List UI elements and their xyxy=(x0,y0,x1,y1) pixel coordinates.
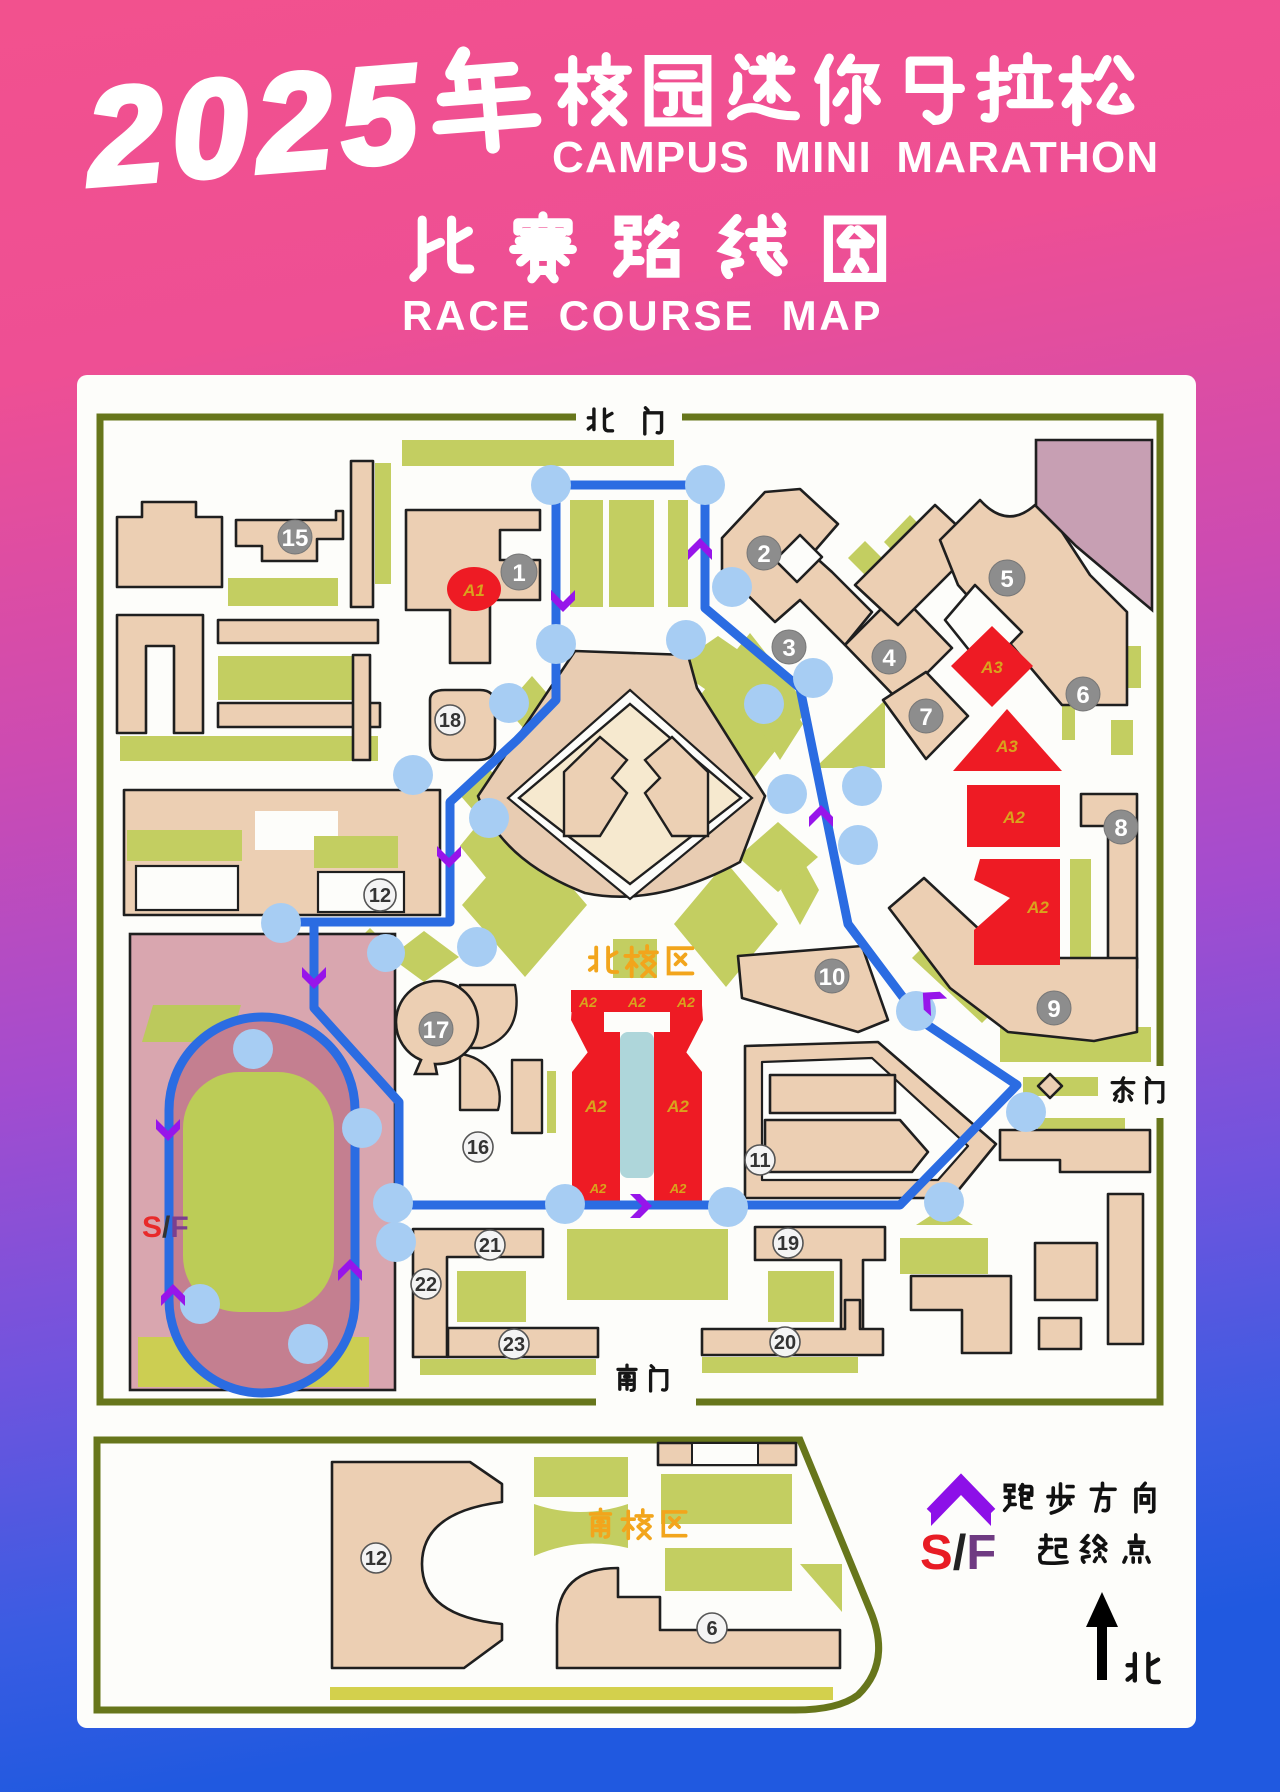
svg-text:A2: A2 xyxy=(669,1181,687,1196)
svg-text:A2: A2 xyxy=(1026,898,1049,917)
svg-text:3: 3 xyxy=(782,635,795,662)
svg-text:21: 21 xyxy=(479,1235,501,1257)
svg-text:15: 15 xyxy=(282,525,309,552)
svg-text:5: 5 xyxy=(1000,566,1013,593)
svg-text:A3: A3 xyxy=(995,737,1018,756)
svg-text:23: 23 xyxy=(503,1334,525,1356)
svg-text:12: 12 xyxy=(365,1548,387,1570)
svg-text:CAMPUS MINI MARATHON: CAMPUS MINI MARATHON xyxy=(552,133,1159,182)
svg-text:7: 7 xyxy=(919,704,932,731)
svg-text:16: 16 xyxy=(467,1137,489,1159)
svg-text:18: 18 xyxy=(439,710,461,732)
svg-text:4: 4 xyxy=(882,645,896,672)
svg-text:A2: A2 xyxy=(627,994,646,1010)
svg-text:19: 19 xyxy=(777,1233,799,1255)
svg-text:20: 20 xyxy=(774,1332,796,1354)
svg-text:A2: A2 xyxy=(676,994,695,1010)
svg-text:A2: A2 xyxy=(1002,808,1025,827)
svg-text:10: 10 xyxy=(819,964,846,991)
svg-text:2: 2 xyxy=(757,541,770,568)
svg-text:S/F: S/F xyxy=(142,1211,189,1244)
svg-text:RACE COURSE MAP: RACE COURSE MAP xyxy=(402,292,883,339)
svg-text:9: 9 xyxy=(1047,996,1060,1023)
svg-text:A3: A3 xyxy=(980,658,1003,677)
svg-text:A2: A2 xyxy=(578,994,597,1010)
svg-text:6: 6 xyxy=(1076,682,1089,709)
svg-text:A2: A2 xyxy=(666,1097,689,1116)
svg-text:1: 1 xyxy=(512,560,525,587)
svg-text:12: 12 xyxy=(369,885,391,907)
svg-text:A2: A2 xyxy=(584,1097,607,1116)
svg-text:2025: 2025 xyxy=(78,35,431,215)
svg-text:8: 8 xyxy=(1114,815,1127,842)
svg-text:22: 22 xyxy=(415,1274,437,1296)
svg-text:17: 17 xyxy=(423,1017,450,1044)
svg-text:S/F: S/F xyxy=(920,1526,996,1580)
svg-text:11: 11 xyxy=(749,1150,770,1172)
svg-text:A2: A2 xyxy=(589,1181,607,1196)
svg-text:A1: A1 xyxy=(462,581,485,600)
svg-text:6: 6 xyxy=(706,1618,717,1640)
